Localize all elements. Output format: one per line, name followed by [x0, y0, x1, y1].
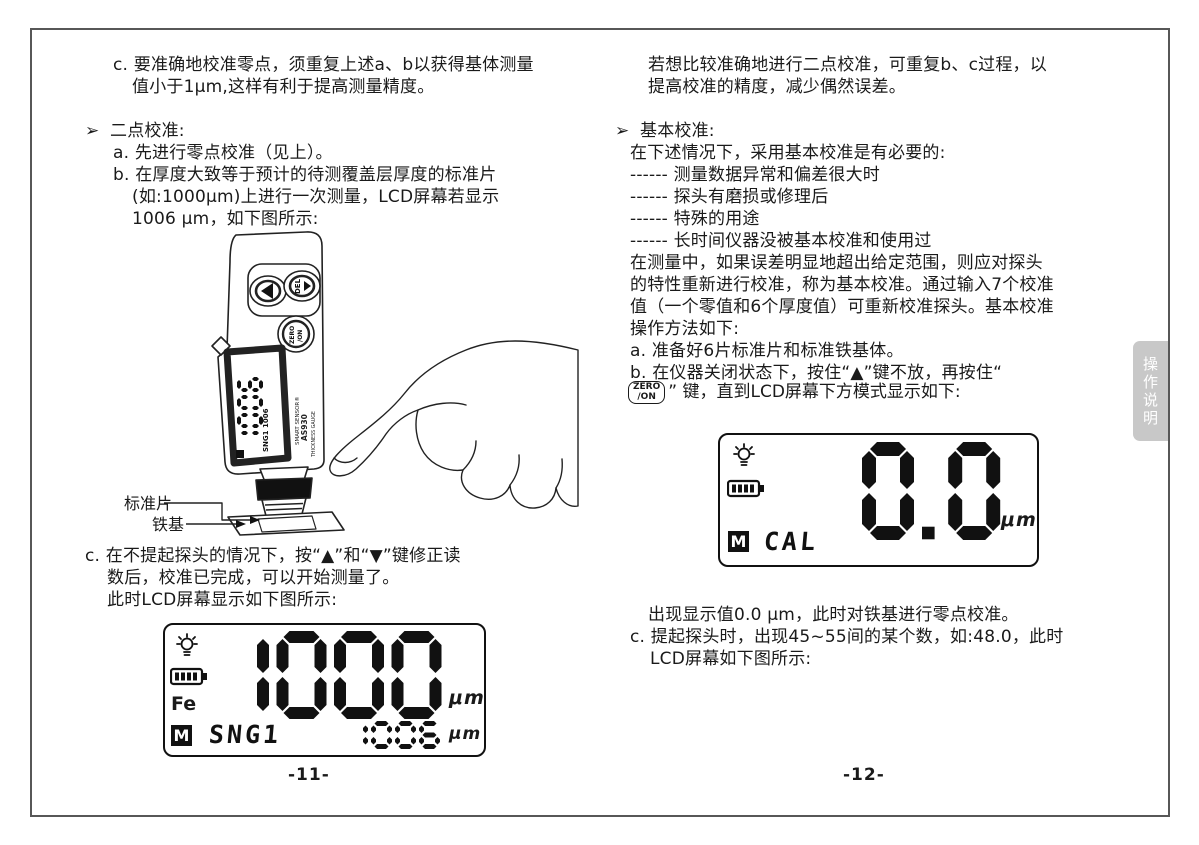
unit-label: μm	[1001, 509, 1037, 531]
text-line: 若想比较准确地进行二点校准，可重复b、c过程，以	[648, 54, 1047, 76]
probe-knurl	[256, 478, 312, 500]
text-line: 操作方法如下:	[630, 318, 739, 340]
chapter-tab-operation-instructions: 操 作 说 明	[1133, 341, 1168, 441]
text-after-chip: ” 键，直到LCD屏幕下方模式显示如下:	[668, 381, 960, 403]
del-down-button: DEL	[284, 271, 320, 301]
text-line: 在测量中，如果误差明显地超出给定范围，则应对探头	[630, 252, 1043, 274]
tab-char: 操	[1143, 356, 1158, 373]
backlight-icon	[732, 443, 756, 469]
text-line: ------ 测量数据异常和偏差很大时	[630, 164, 880, 186]
lcd-panel-right: M μm CAL	[718, 433, 1039, 567]
device-screen	[227, 348, 288, 463]
zero-on-key-icon: ZERO /ON	[628, 381, 665, 404]
lcd-subtext: CAL	[763, 527, 820, 556]
text-line: c. 提起探头时，出现45~55间的某个数，如:48.0，此时	[630, 626, 1063, 648]
page-number-right: -12-	[843, 765, 885, 785]
text-line: ------ 长时间仪器没被基本校准和使用过	[630, 230, 932, 252]
fe-mode-label: Fe	[171, 693, 196, 715]
gauge-body: DEL ZERO /ON	[212, 232, 344, 535]
lcd-main-digits	[219, 631, 444, 721]
standard-sheet-piece	[258, 516, 316, 532]
backlight-icon	[175, 633, 199, 659]
measure-mode-badge: M	[728, 531, 749, 552]
device-screen-subtext: SNG1 1006	[262, 408, 270, 452]
standard-sheet-label: 标准片	[124, 494, 172, 513]
lcd-subtext: SNG1	[208, 720, 283, 749]
text-line: LCD屏幕如下图所示:	[650, 648, 811, 670]
text-line: 值（一个零值和6个厚度值）可重新校准探头。基本校准	[630, 296, 1054, 318]
text-line: b. 在厚度大致等于预计的待测覆盖层厚度的标准片	[113, 164, 496, 186]
text-line: c. 要准确地校准零点，须重复上述a、b以获得基体测量	[113, 54, 534, 76]
device-screen-mode-badge	[236, 450, 244, 458]
on-label: /ON	[297, 330, 304, 342]
arrow-bullet-icon: ➢	[85, 120, 99, 142]
page-number-left: -11-	[288, 765, 330, 785]
section-title: 基本校准:	[640, 120, 715, 142]
del-label: DEL	[294, 278, 302, 294]
zero-label: ZERO	[289, 326, 296, 344]
text-line: 的特性重新进行校准，称为基本校准。通过输入7个校准	[630, 274, 1054, 296]
text-line: 提高校准的精度，减少偶然误差。	[648, 76, 906, 98]
text-line: ------ 特殊的用途	[630, 208, 760, 230]
measure-mode-badge: M	[171, 725, 192, 746]
text-line: (如:1000μm)上进行一次测量，LCD屏幕若显示	[132, 186, 499, 208]
lcd-panel-left: Fe M μm SNG1 μm	[163, 623, 486, 757]
tab-char: 明	[1143, 410, 1158, 427]
model-caption: THICKNESS GAUGE	[311, 411, 317, 458]
text-line: ------ 探头有磨损或修理后	[630, 186, 828, 208]
lcd-sub-digits	[347, 721, 442, 751]
text-line: 在下述情况下，采用基本校准是有必要的:	[630, 142, 946, 164]
text-line: 出现显示值0.0 μm，此时对铁基进行零点校准。	[648, 604, 1019, 626]
tab-char: 说	[1143, 392, 1158, 409]
up-arrow-button	[250, 276, 286, 306]
section-title: 二点校准:	[110, 120, 185, 142]
text-line-with-chip: ZERO /ON ” 键，直到LCD屏幕下方模式显示如下:	[628, 381, 961, 404]
chip-on-text: /ON	[637, 393, 655, 403]
battery-icon	[727, 479, 765, 498]
arrow-bullet-icon: ➢	[615, 120, 629, 142]
tab-char: 作	[1143, 374, 1158, 391]
model-label: AS930	[300, 414, 309, 441]
manual-spread: c. 要准确地校准零点，须重复上述a、b以获得基体测量 值小于1μm,这样有利于…	[0, 0, 1199, 845]
lcd-main-digits	[862, 442, 1003, 542]
text-line: a. 先进行零点校准（见上）。	[113, 142, 333, 164]
hand-illustration	[330, 341, 578, 508]
text-line: c. 在不提起探头的情况下，按“▲”和“▼”键修正读	[85, 545, 461, 567]
text-line: 此时LCD屏幕显示如下图所示:	[107, 589, 337, 611]
gauge-illustration: DEL ZERO /ON	[100, 222, 580, 552]
text-line: a. 准备好6片标准片和标准铁基体。	[630, 340, 904, 362]
text-line: 值小于1μm,这样有利于提高测量精度。	[132, 76, 434, 98]
unit-label: μm	[449, 724, 481, 744]
battery-icon	[170, 667, 208, 686]
text-line: 数后，校准已完成，可以开始测量了。	[107, 567, 399, 589]
unit-label: μm	[449, 687, 485, 709]
iron-base-label: 铁基	[152, 515, 184, 534]
